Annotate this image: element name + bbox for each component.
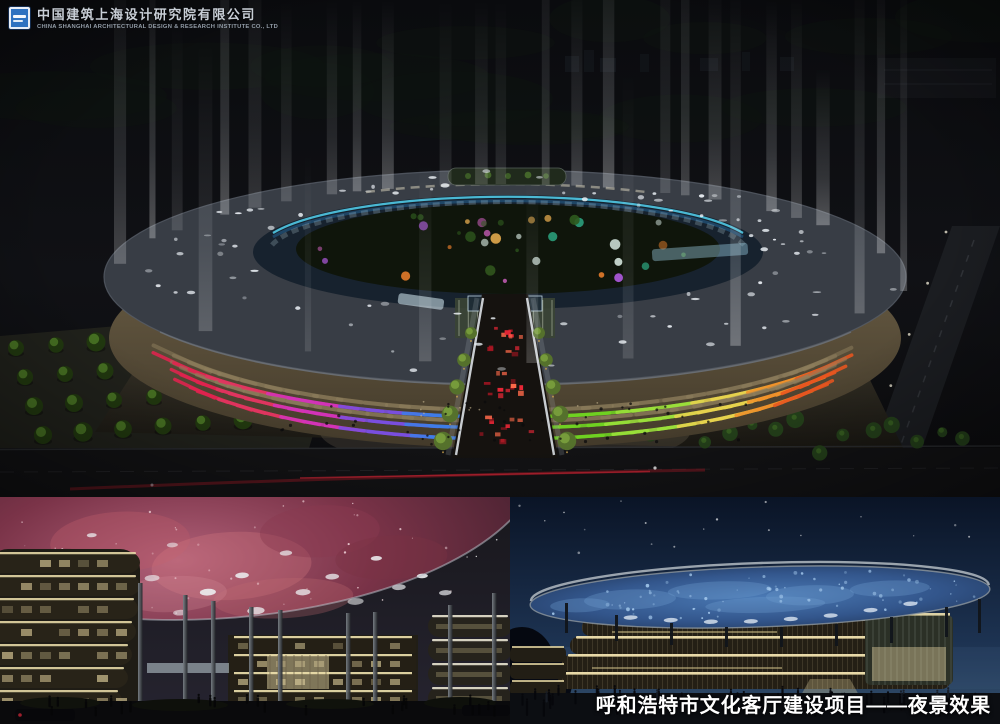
presentation-board: 中国建筑上海设计研究院有限公司 CHINA SHANGHAI ARCHITECT…: [0, 0, 1000, 724]
elevation-view-starry-disc: 呼和浩特市文化客厅建设项目——夜景效果: [510, 497, 1000, 724]
car-silhouette: [462, 705, 510, 716]
company-seal-icon: [9, 7, 30, 29]
company-name-zh: 中国建筑上海设计研究院有限公司: [37, 7, 278, 22]
left-building: [0, 549, 140, 711]
lit-lobby: [267, 655, 329, 689]
aerial-night-view: 中国建筑上海设计研究院有限公司 CHINA SHANGHAI ARCHITECT…: [0, 0, 1000, 497]
vignette: [0, 0, 1000, 497]
aerial-rendering: [0, 0, 1000, 497]
glass-band: [147, 663, 229, 673]
project-caption: 呼和浩特市文化客厅建设项目——夜景效果: [596, 689, 991, 718]
car-silhouette: [15, 709, 75, 721]
street-view-rendering: [0, 497, 510, 724]
car-taillight: [18, 713, 22, 717]
right-atrium: [865, 613, 953, 685]
company-name-en: CHINA SHANGHAI ARCHITECTURAL DESIGN & RE…: [37, 23, 278, 31]
street-ground: [0, 697, 510, 724]
street-view-nebula-canopy: [0, 497, 510, 724]
company-logo: 中国建筑上海设计研究院有限公司 CHINA SHANGHAI ARCHITECT…: [9, 7, 278, 31]
